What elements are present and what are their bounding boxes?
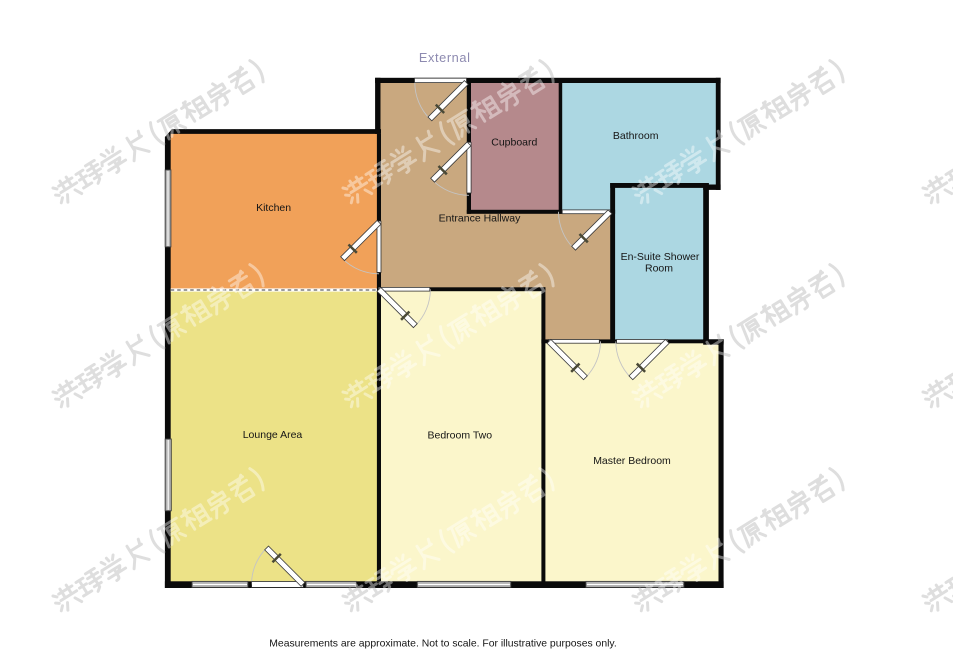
svg-text:Master Bedroom: Master Bedroom bbox=[593, 455, 671, 467]
svg-text:Measurements are approximate.: Measurements are approximate. Not to sca… bbox=[269, 638, 616, 649]
svg-text:Cupboard: Cupboard bbox=[491, 136, 537, 148]
svg-text:Lounge Area: Lounge Area bbox=[243, 429, 303, 441]
svg-text:Room: Room bbox=[645, 263, 673, 275]
svg-text:Bathroom: Bathroom bbox=[613, 130, 659, 142]
svg-text:En-Suite Shower: En-Suite Shower bbox=[621, 251, 700, 263]
svg-text:Kitchen: Kitchen bbox=[256, 202, 291, 214]
svg-text:External: External bbox=[419, 50, 471, 65]
svg-text:Bedroom Two: Bedroom Two bbox=[428, 429, 493, 441]
svg-text:Entrance Hallway: Entrance Hallway bbox=[439, 212, 521, 224]
